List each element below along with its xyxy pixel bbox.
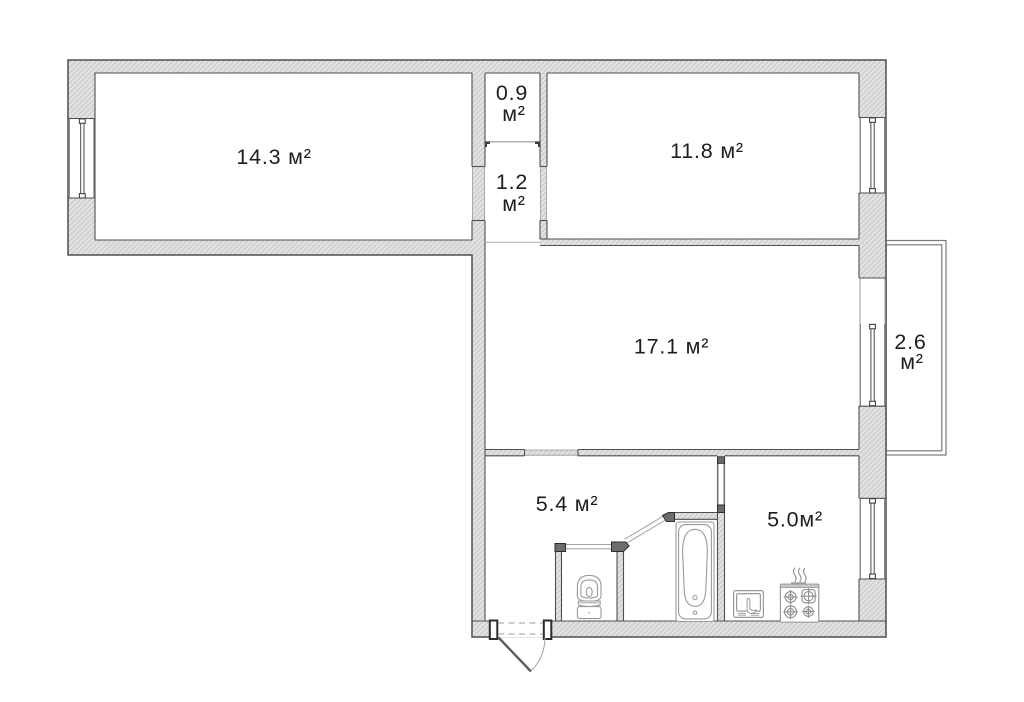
svg-text:м²: м² (502, 192, 526, 216)
svg-text:14.3 м²: 14.3 м² (236, 145, 311, 169)
svg-text:1.2: 1.2 (496, 170, 528, 194)
svg-text:м²: м² (900, 350, 924, 374)
svg-text:5.4 м²: 5.4 м² (536, 492, 599, 516)
svg-text:17.1 м²: 17.1 м² (634, 335, 709, 359)
svg-text:5.0м²: 5.0м² (767, 508, 823, 532)
svg-text:11.8 м²: 11.8 м² (670, 139, 744, 163)
svg-text:м²: м² (502, 102, 526, 126)
